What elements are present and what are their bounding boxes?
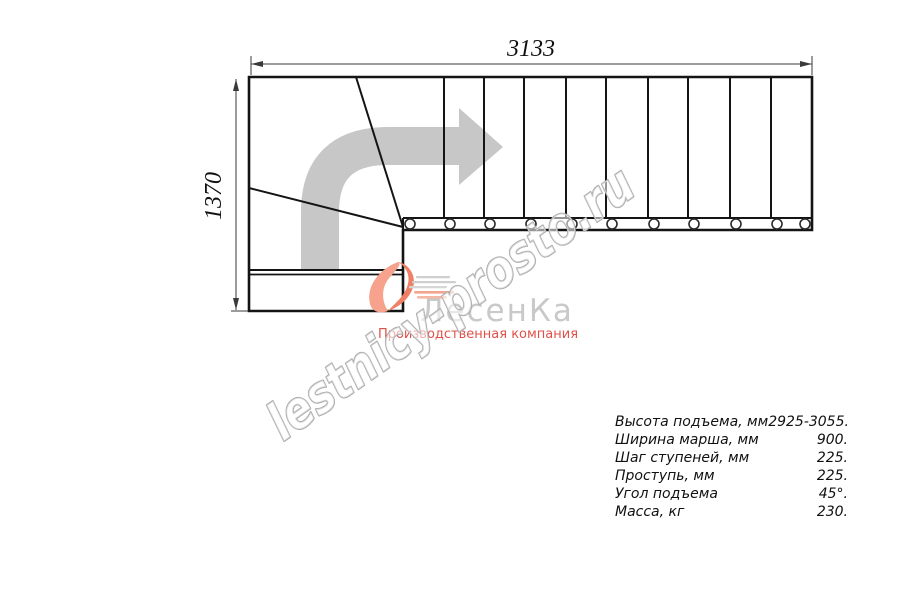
spec-label: Масса, кг [615,503,684,521]
spec-value: 230. [817,503,848,521]
spec-label: Угол подъема [615,485,718,503]
baluster-circle [485,219,495,229]
baluster-circle [772,219,782,229]
spec-row-angle: Угол подъема 45°. [615,485,848,503]
baluster-circle [445,219,455,229]
baluster-circle [689,219,699,229]
baluster-circle [405,219,415,229]
spec-value: 900. [817,431,848,449]
spec-row-flight-width: Ширина марша, мм 900. [615,431,848,449]
width-arrow-left [251,61,263,67]
spec-value: 225. [817,467,848,485]
spec-label: Проступь, мм [615,467,715,485]
spec-table: Высота подъема, мм 2925-3055. Ширина мар… [615,413,848,521]
spec-value: 225. [817,449,848,467]
width-dimension-label: 3133 [506,36,555,62]
height-arrow-top [233,79,239,91]
spec-value: 45°. [819,485,848,503]
spec-label: Шаг ступеней, мм [615,449,749,467]
spec-row-tread-depth: Проступь, мм 225. [615,467,848,485]
spec-row-step-pitch: Шаг ступеней, мм 225. [615,449,848,467]
spec-label: Высота подъема, мм [615,413,768,431]
spec-row-height: Высота подъема, мм 2925-3055. [615,413,848,431]
width-arrow-right [800,61,812,67]
direction-arrow-shaft [320,146,459,271]
direction-arrow-head [459,108,503,185]
spec-value: 2925-3055. [768,413,849,431]
spec-row-mass: Масса, кг 230. [615,503,848,521]
baluster-circle [649,219,659,229]
height-dimension-label: 1370 [201,172,227,220]
height-arrow-bottom [233,298,239,310]
spec-label: Ширина марша, мм [615,431,759,449]
baluster-circle [731,219,741,229]
baluster-circle [800,219,810,229]
direction-arrow [320,108,503,271]
